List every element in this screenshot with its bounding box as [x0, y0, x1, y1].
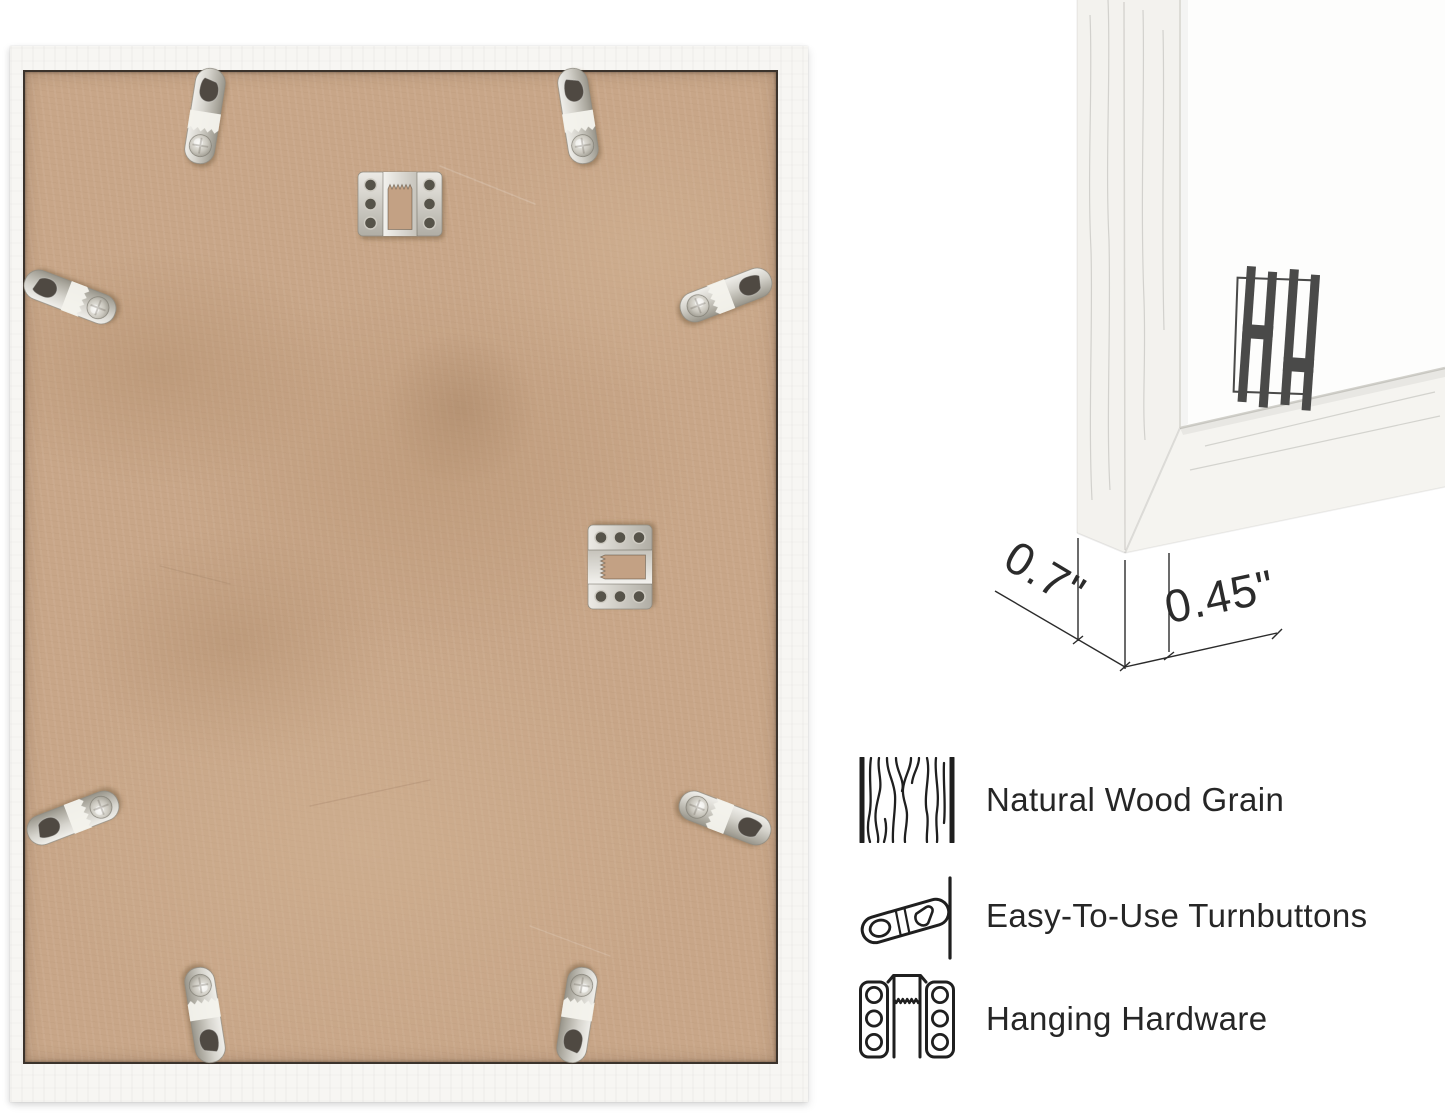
turnbutton	[182, 965, 228, 1065]
feature-label: Hanging Hardware	[986, 1000, 1268, 1038]
turnbutton	[182, 66, 228, 166]
feature-row: Easy-To-Use Turnbuttons	[856, 869, 1368, 963]
dimension-label-depth: 0.7"	[996, 530, 1095, 618]
turnbutton	[675, 786, 776, 849]
sawtooth-hanger	[588, 525, 652, 609]
hanging-hardware-icon	[856, 972, 958, 1066]
frame-back-photo	[10, 46, 808, 1102]
feature-row: Hanging Hardware	[856, 972, 1268, 1066]
hardware-layer	[10, 46, 808, 1102]
feature-label: Easy-To-Use Turnbuttons	[986, 897, 1368, 935]
wood-grain-icon	[856, 753, 958, 847]
feature-row: Natural Wood Grain	[856, 753, 1284, 847]
sawtooth-hanger	[358, 172, 442, 236]
turnbutton	[555, 66, 601, 166]
dimension-label-face: 0.45"	[1160, 559, 1279, 633]
turnbutton	[23, 786, 124, 849]
corner-photo: 0.7" 0.45"	[975, 0, 1445, 730]
feature-label: Natural Wood Grain	[986, 781, 1284, 819]
backing-scratches	[160, 166, 610, 956]
turnbutton	[676, 263, 777, 326]
turnbutton	[554, 965, 600, 1065]
turnbutton-icon	[856, 869, 958, 963]
turnbutton	[20, 265, 121, 328]
